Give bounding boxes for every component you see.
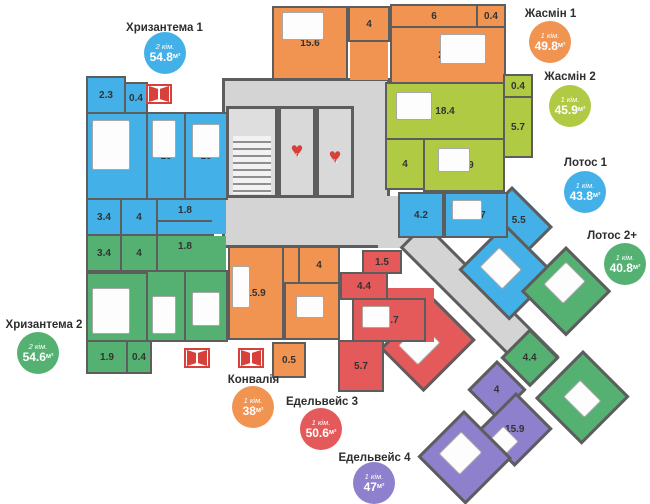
furniture — [92, 120, 130, 170]
apartment-badge-jasmin1[interactable]: 1 кім.49.8м² — [529, 21, 571, 63]
room-jasmin1-hall[interactable]: 6 — [390, 4, 478, 28]
room-jasmin1-bath[interactable]: 4 — [348, 6, 390, 42]
furniture — [452, 200, 482, 220]
corridor-fill — [158, 222, 214, 234]
room-chrysanthemum2-bath2[interactable]: 4 — [120, 234, 158, 272]
apartment-title-chrysanthemum2: Хризантема 2 — [0, 319, 88, 331]
room-jasmin2-bath[interactable]: 4 — [385, 138, 425, 190]
apartment-badge-edelweiss4[interactable]: 1 кім.47м² — [353, 462, 395, 504]
furniture — [438, 148, 470, 172]
apartment-title-jasmin2: Жасмін 2 — [520, 71, 620, 83]
window-vent-icon — [184, 348, 210, 368]
room-jasmin2-loggia[interactable]: 5.7 — [503, 96, 533, 158]
room-edelweiss3-balcony[interactable]: 1.5 — [362, 250, 402, 274]
room-jasmin1-balcony[interactable]: 0.4 — [476, 4, 506, 28]
furniture — [543, 262, 585, 304]
furniture — [296, 296, 324, 318]
apartment-title-jasmin1: Жасмін 1 — [503, 8, 598, 20]
apartment-title-lotos2: Лотос 2+ — [574, 230, 650, 242]
window-vent-icon — [146, 84, 172, 104]
room-konvalia-balcony[interactable]: 0.5 — [272, 342, 306, 378]
apartment-title-lotos1: Лотос 1 — [543, 157, 628, 169]
furniture — [152, 296, 176, 334]
apartment-badge-lotos2[interactable]: 1 кім.40.8м² — [604, 243, 646, 285]
furniture — [192, 292, 220, 326]
floor-plan: ♥↑↓ ♥↑↓ 2.3 0.4 14.6 10 10 3.4 4 1.8 3.4… — [0, 0, 650, 504]
furniture — [152, 120, 176, 158]
furniture — [362, 306, 390, 328]
room-konvalia-bath[interactable]: 4 — [298, 246, 340, 284]
elevator-arrows-icon: ↑↓ — [324, 151, 346, 173]
room-chrysanthemum2-balcony[interactable]: 0.4 — [126, 340, 152, 374]
furniture — [92, 288, 130, 334]
room-chrysanthemum1-bath2[interactable]: 4 — [120, 198, 158, 236]
elevator-heart-icon: ♥↑↓ — [286, 140, 308, 162]
furniture — [480, 247, 522, 289]
apartment-badge-chrysanthemum1[interactable]: 2 кім.54.8м² — [144, 32, 186, 74]
room-chrysanthemum2-bath1[interactable]: 3.4 — [86, 234, 122, 272]
room-chrysanthemum1-wc[interactable]: 1.8 — [156, 198, 214, 222]
corridor-fill — [212, 236, 226, 272]
apartment-badge-edelweiss3[interactable]: 1 кім.50.6м² — [300, 408, 342, 450]
stairs[interactable] — [233, 136, 271, 194]
furniture — [282, 12, 324, 40]
furniture — [439, 431, 483, 475]
room-chrysanthemum2-wc[interactable]: 1.8 — [156, 234, 214, 258]
apartment-badge-jasmin2[interactable]: 1 кім.45.9м² — [549, 85, 591, 127]
room-chrysanthemum1-hall[interactable]: 2.3 — [86, 76, 126, 114]
room-chrysanthemum2-hall[interactable]: 1.9 — [86, 340, 128, 374]
furniture — [396, 92, 432, 120]
corridor-fill — [212, 200, 226, 234]
apartment-title-konvalia: Конвалія — [206, 374, 301, 386]
room-edelweiss3-hall[interactable]: 5.7 — [338, 340, 384, 392]
furniture — [232, 266, 250, 308]
apartment-title-edelweiss3: Едельвейс 3 — [268, 396, 376, 408]
room-chrysanthemum1-balcony[interactable]: 0.4 — [124, 82, 148, 114]
room-chrysanthemum1-bath1[interactable]: 3.4 — [86, 198, 122, 236]
furniture — [563, 380, 601, 418]
furniture — [192, 124, 220, 158]
apartment-badge-chrysanthemum2[interactable]: 2 кім.54.6м² — [17, 332, 59, 374]
elevator-arrows-icon: ↑↓ — [286, 145, 308, 167]
elevator-heart-icon: ♥↑↓ — [324, 146, 346, 168]
room-edelweiss3-bath[interactable]: 4.4 — [340, 272, 388, 300]
furniture — [440, 34, 486, 64]
corridor-fill — [350, 42, 388, 80]
window-vent-icon — [238, 348, 264, 368]
room-lotos1-bath[interactable]: 4.2 — [398, 192, 444, 238]
apartment-badge-lotos1[interactable]: 1 кім.43.8м² — [564, 171, 606, 213]
